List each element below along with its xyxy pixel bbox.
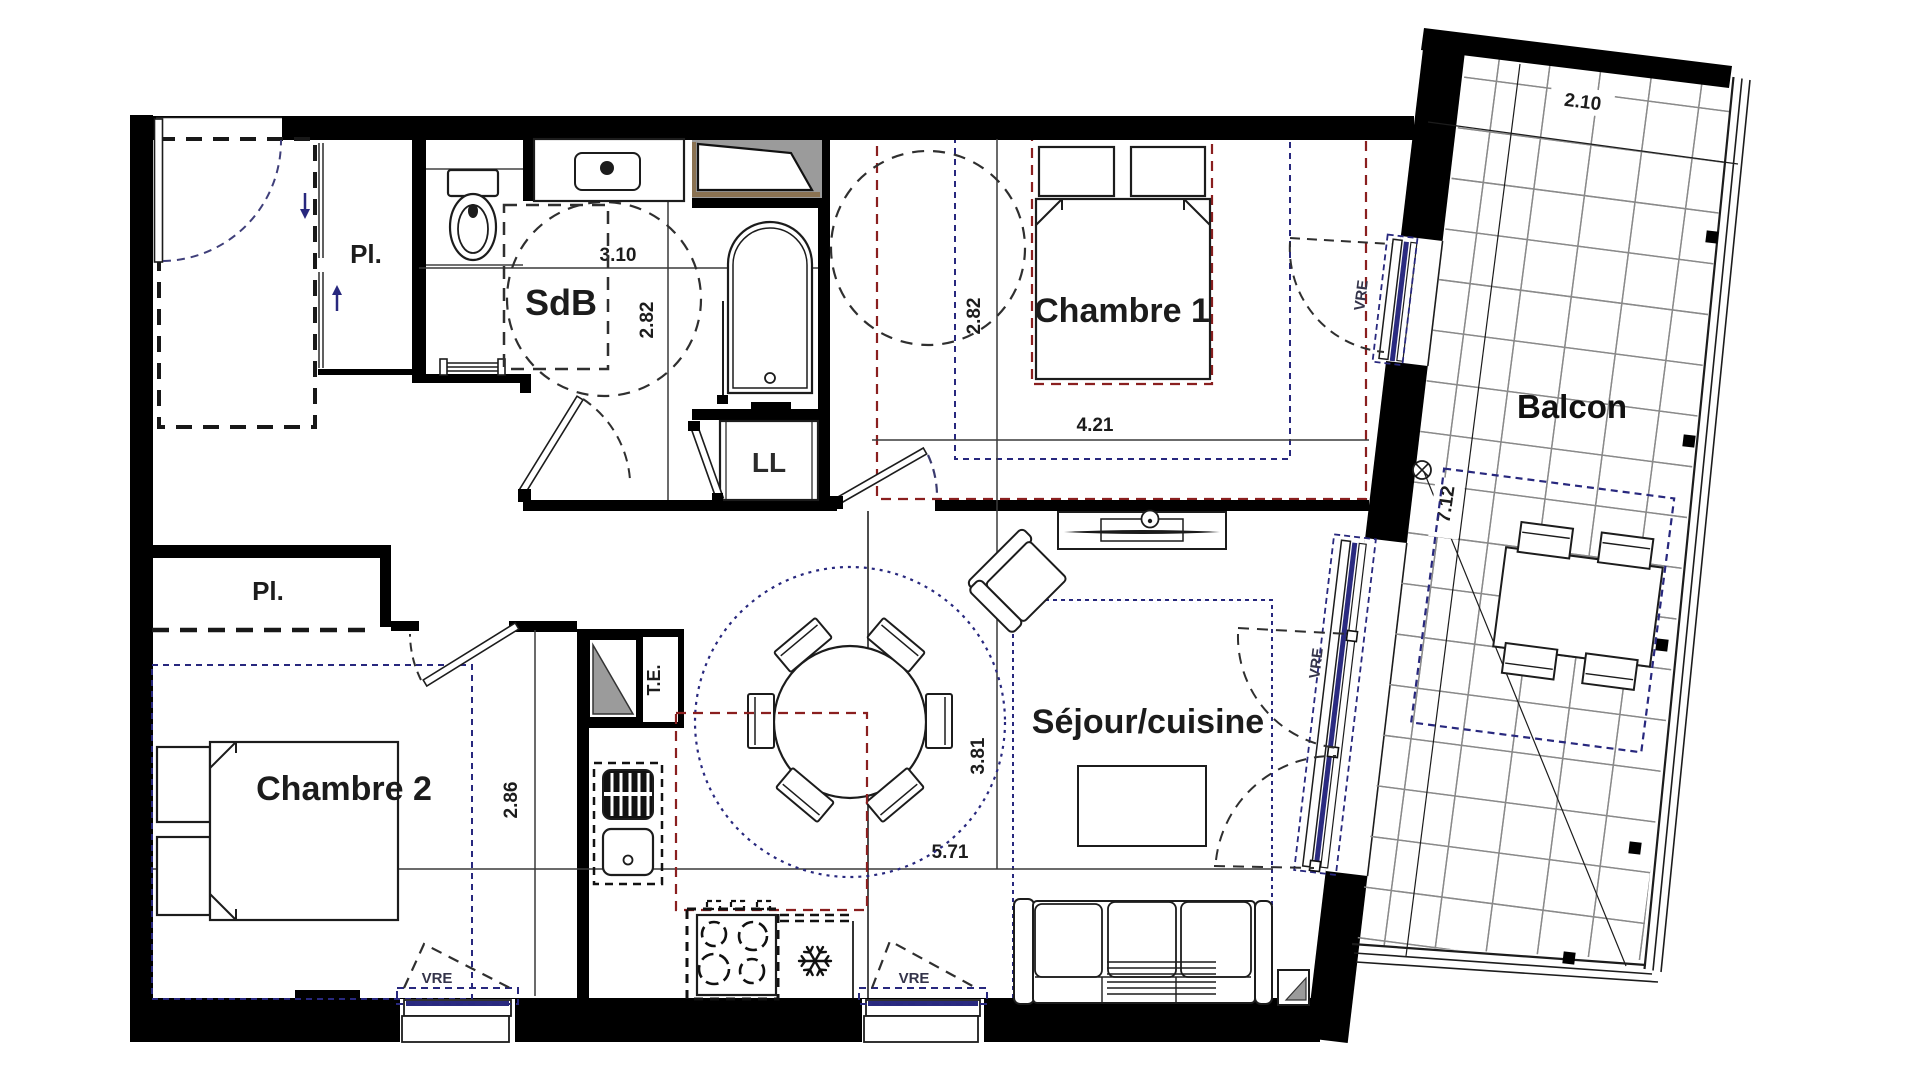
svg-text:4.21: 4.21	[1077, 415, 1114, 436]
svg-text:3.81: 3.81	[968, 737, 989, 774]
svg-text:3.10: 3.10	[600, 245, 637, 266]
svg-text:LL: LL	[752, 447, 786, 478]
svg-text:2.82: 2.82	[637, 302, 658, 339]
svg-text:T.E.: T.E.	[644, 664, 664, 695]
svg-text:Pl.: Pl.	[252, 576, 284, 606]
svg-text:Pl.: Pl.	[350, 239, 382, 269]
svg-text:Balcon: Balcon	[1517, 388, 1627, 425]
svg-text:5.71: 5.71	[932, 842, 969, 863]
svg-text:Séjour/cuisine: Séjour/cuisine	[1032, 703, 1264, 741]
svg-text:2.86: 2.86	[501, 782, 522, 819]
svg-text:VRE: VRE	[422, 970, 453, 987]
svg-text:Chambre 1: Chambre 1	[1034, 292, 1210, 330]
svg-text:Chambre 2: Chambre 2	[256, 770, 432, 808]
svg-text:SdB: SdB	[525, 282, 597, 323]
svg-text:VRE: VRE	[899, 970, 930, 987]
